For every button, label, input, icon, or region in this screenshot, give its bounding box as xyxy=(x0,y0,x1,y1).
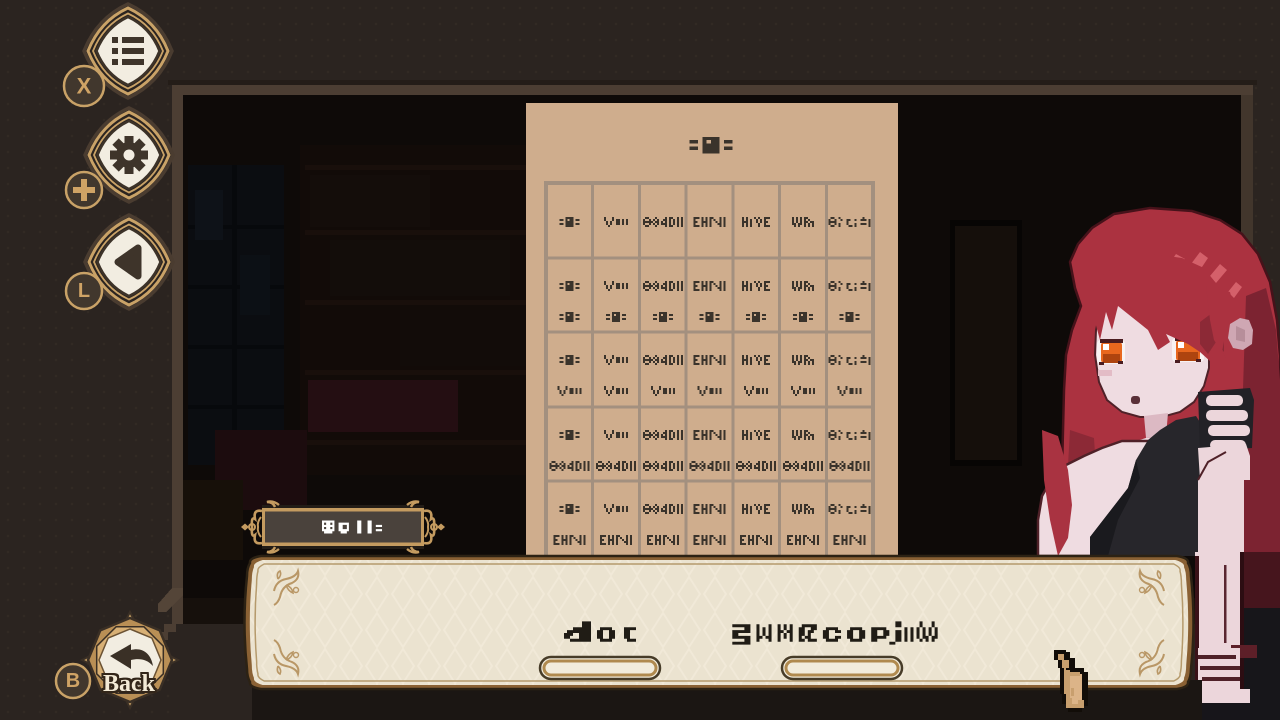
svg-text:X: X xyxy=(77,74,92,99)
svg-text:B: B xyxy=(66,670,80,692)
svg-text:Back: Back xyxy=(103,671,156,697)
svg-text:L: L xyxy=(78,280,90,302)
